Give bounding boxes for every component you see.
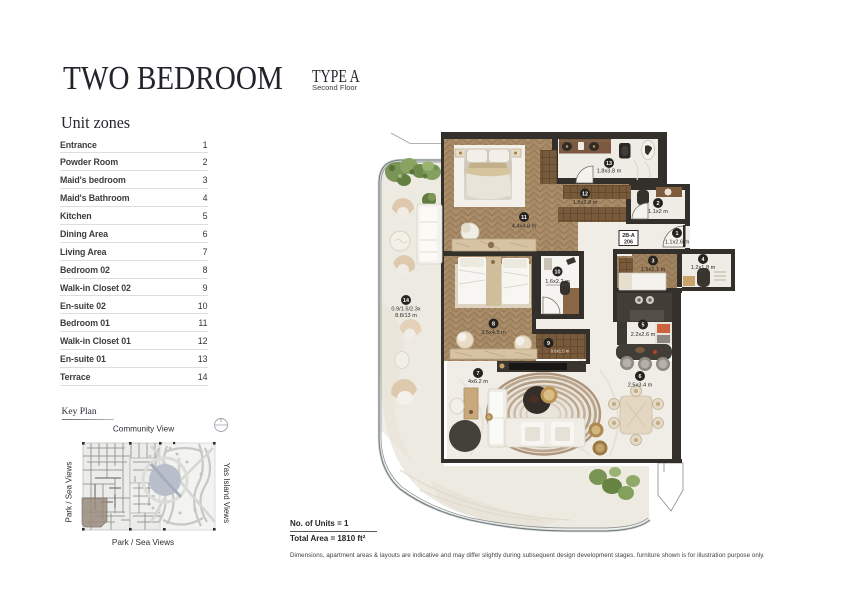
svg-text:2: 2 xyxy=(657,201,660,207)
svg-text:206: 206 xyxy=(624,240,633,246)
svg-text:6: 6 xyxy=(639,374,642,380)
svg-text:Park / Sea Views: Park / Sea Views xyxy=(112,538,174,547)
svg-text:5: 5 xyxy=(642,323,645,329)
svg-text:1.5x2.1 m: 1.5x2.1 m xyxy=(641,267,666,273)
svg-text:10: 10 xyxy=(555,270,561,276)
svg-text:4x6.2 m: 4x6.2 m xyxy=(468,379,488,385)
svg-text:Yas Island Views: Yas Island Views xyxy=(222,463,231,523)
svg-text:Park / Sea Views: Park / Sea Views xyxy=(65,462,74,523)
svg-text:8.8/13 m: 8.8/13 m xyxy=(395,313,417,319)
svg-text:12: 12 xyxy=(582,192,588,198)
svg-text:1.1x2.6 m: 1.1x2.6 m xyxy=(665,240,690,246)
svg-text:2B-A: 2B-A xyxy=(622,233,635,239)
svg-text:2.2x2.6 m: 2.2x2.6 m xyxy=(631,332,656,338)
svg-text:0.6x1.5 m: 0.6x1.5 m xyxy=(551,349,570,354)
svg-text:1.1x2 m: 1.1x2 m xyxy=(648,209,668,215)
svg-text:11: 11 xyxy=(521,215,527,221)
svg-text:1.6x2.2 m: 1.6x2.2 m xyxy=(545,279,570,285)
svg-text:3.5x4.5 m: 3.5x4.5 m xyxy=(481,330,506,336)
svg-text:1: 1 xyxy=(676,231,679,237)
svg-text:1.5x2.8 m: 1.5x2.8 m xyxy=(573,200,598,206)
svg-text:4: 4 xyxy=(702,257,705,263)
svg-text:1.2x1.8 m: 1.2x1.8 m xyxy=(691,265,716,271)
svg-text:8: 8 xyxy=(492,322,495,328)
svg-text:9: 9 xyxy=(547,341,550,347)
svg-text:Community View: Community View xyxy=(113,425,174,434)
svg-text:0.9/1.5/2.3x: 0.9/1.5/2.3x xyxy=(391,307,420,313)
svg-text:4.4x4.8 m: 4.4x4.8 m xyxy=(512,224,537,230)
svg-text:1.8x3.8 m: 1.8x3.8 m xyxy=(597,169,622,175)
svg-text:7: 7 xyxy=(477,371,480,377)
svg-text:3: 3 xyxy=(652,259,655,265)
svg-text:14: 14 xyxy=(403,298,409,304)
svg-text:13: 13 xyxy=(606,161,612,167)
svg-text:2.5x3.4 m: 2.5x3.4 m xyxy=(628,383,653,389)
